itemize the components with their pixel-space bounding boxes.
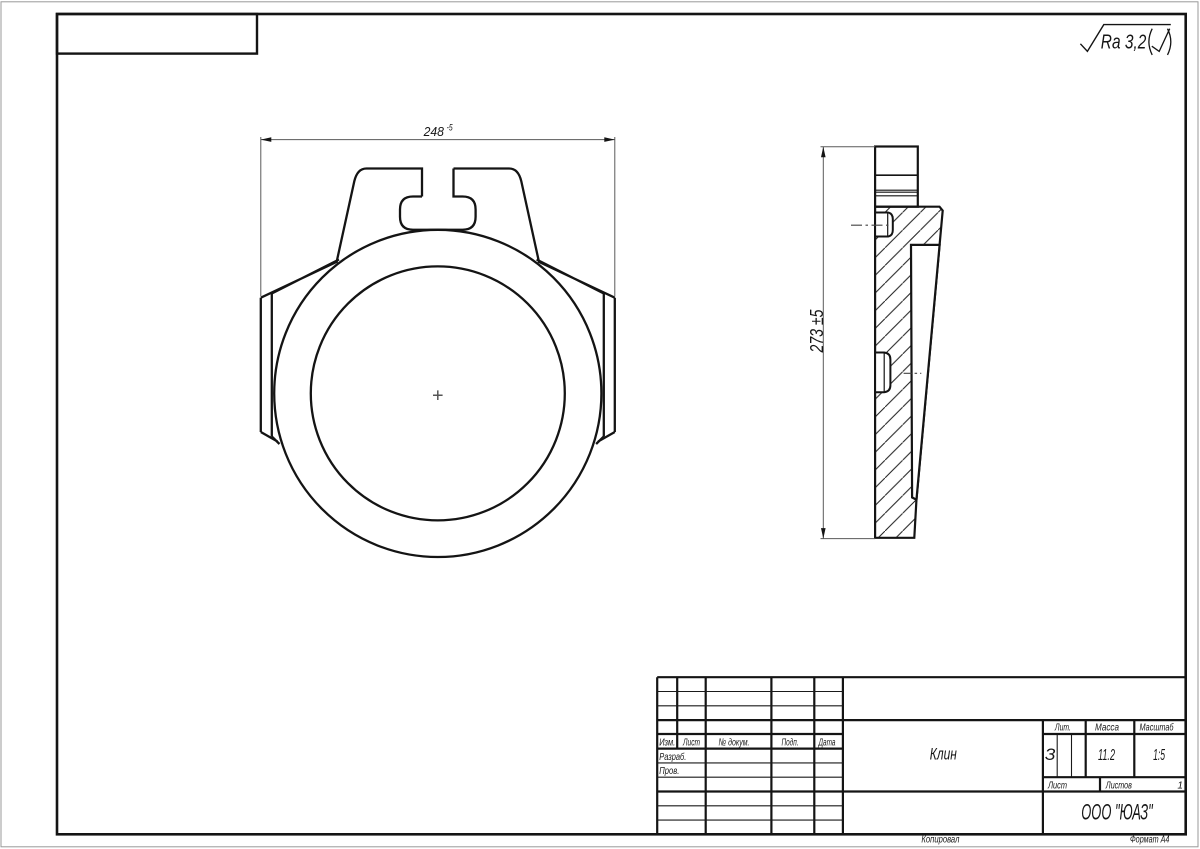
svg-text:Масштаб: Масштаб [1140,721,1174,733]
svg-text:-5: -5 [447,123,454,134]
svg-text:11.2: 11.2 [1098,747,1115,764]
svg-text:Масса: Масса [1095,722,1119,733]
svg-text:1: 1 [1177,780,1183,791]
svg-text:1:5: 1:5 [1153,747,1165,764]
svg-text:Подп.: Подп. [782,736,799,748]
svg-text:Лист: Лист [682,736,700,748]
svg-text:273 ±5: 273 ±5 [807,309,827,354]
svg-text:248: 248 [423,124,445,139]
svg-text:З: З [1045,745,1056,764]
svg-text:Пров.: Пров. [659,765,679,777]
svg-text:Копировал: Копировал [921,834,959,846]
svg-text:Лит.: Лит. [1054,722,1071,733]
svg-text:Листов: Листов [1105,780,1132,791]
svg-text:№ докум.: № докум. [719,736,750,748]
svg-text:Дата: Дата [818,736,836,748]
svg-text:Клин: Клин [930,745,957,763]
svg-text:Изм.: Изм. [659,736,675,748]
svg-text:ООО "ЮАЗ": ООО "ЮАЗ" [1081,800,1153,825]
svg-text:Ra 3,2: Ra 3,2 [1101,31,1147,53]
svg-text:Формат А4: Формат А4 [1130,834,1170,846]
svg-text:Лист: Лист [1047,780,1067,791]
svg-text:Разраб.: Разраб. [659,751,686,763]
